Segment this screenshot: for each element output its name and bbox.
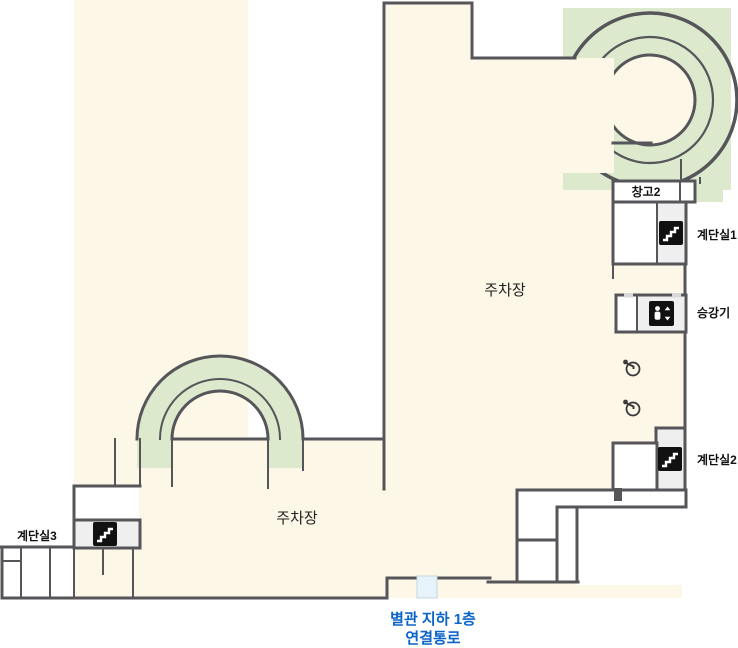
ramp2-green-left [137, 439, 172, 468]
wall-tab [614, 488, 622, 501]
stairwell3-stairs-icon [93, 522, 117, 546]
stairwell2-stairs-icon [658, 447, 682, 471]
floorplan-page: 창고2 계단실1 승강기 계단실2 계단실3 [0, 0, 738, 648]
elevator-door-gap-1 [624, 293, 633, 298]
floor-top-arm [386, 4, 470, 60]
floor-bottom-strip [490, 585, 682, 598]
storage2-label: 창고2 [632, 184, 661, 199]
passage-opening [417, 576, 437, 598]
ramp-upper-right [560, 8, 737, 202]
room-elevator: 승강기 [616, 293, 730, 332]
floorplan-canvas: 창고2 계단실1 승강기 계단실2 계단실3 [0, 0, 738, 648]
elevator-door-gap-2 [672, 293, 681, 298]
room-storage2: 창고2 [613, 181, 695, 202]
stall-cells-white [4, 549, 73, 597]
stairwell3-label: 계단실3 [17, 528, 57, 543]
stairwell1-stairs-icon [659, 221, 683, 245]
elevator-label: 승강기 [697, 305, 730, 320]
ramp-floor-cut [560, 58, 614, 173]
stairwell2-label: 계단실2 [697, 452, 737, 467]
ramp2-green-right [268, 439, 303, 468]
corridor-vertical [558, 507, 576, 582]
ramp-green-pad-ext [695, 183, 723, 202]
room-stairwell3: 계단실3 [17, 520, 140, 548]
passage-label-line1: 별관 지하 1층 [390, 610, 476, 628]
void-left-notch [75, 487, 139, 520]
stairwell2-box [613, 443, 657, 491]
stairwell1-label: 계단실1 [697, 227, 737, 242]
ramp-inner-wall [605, 55, 695, 145]
rooms-white-block [518, 491, 557, 581]
parking-label-upper: 주차장 [484, 282, 526, 299]
parking-label-lower: 주차장 [276, 510, 318, 527]
elevator-icon [649, 301, 674, 326]
passage-label-line2: 연결통로 [405, 629, 460, 647]
bottom-right-cluster [488, 488, 686, 582]
